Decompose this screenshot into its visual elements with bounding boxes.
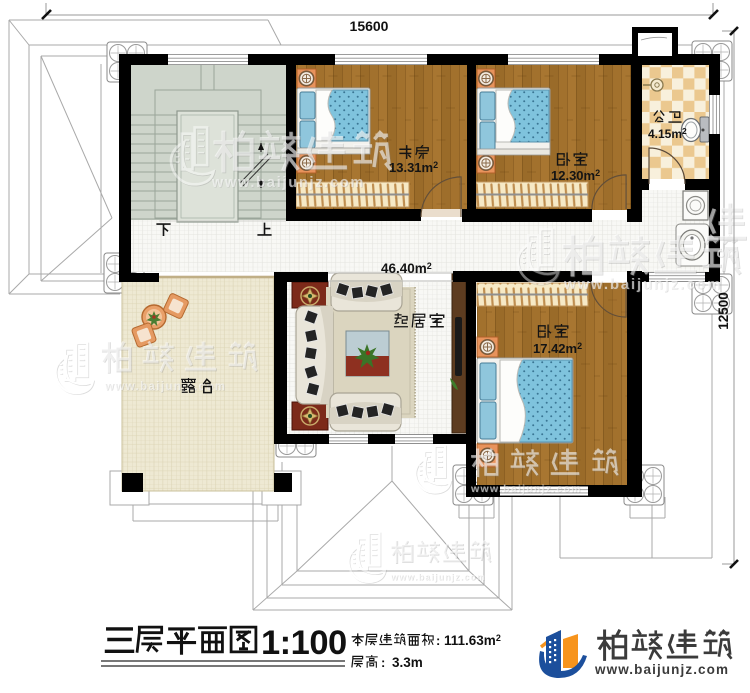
svg-text:om: om [716, 244, 740, 260]
svg-text:www.baijunjz.com: www.baijunjz.com [563, 276, 722, 293]
svg-text:15600: 15600 [350, 18, 389, 34]
svg-text:4.15m2: 4.15m2 [648, 126, 687, 141]
svg-text:www.baijunjz.com: www.baijunjz.com [594, 662, 729, 677]
svg-text:13.31m2: 13.31m2 [389, 160, 438, 175]
svg-text:www.baijunjz.com: www.baijunjz.com [390, 572, 486, 582]
svg-text:17.42m2: 17.42m2 [533, 341, 582, 356]
svg-text:1:100: 1:100 [261, 624, 347, 662]
svg-text:3.3m: 3.3m [392, 655, 423, 670]
svg-text::: : [436, 633, 440, 648]
svg-text::: : [381, 655, 385, 670]
svg-text:111.63m2: 111.63m2 [444, 633, 501, 648]
svg-text:12500: 12500 [716, 292, 731, 330]
svg-text:www.baijunjz.com: www.baijunjz.com [470, 483, 582, 495]
svg-text:www.baijunjz.com: www.baijunjz.com [211, 175, 365, 191]
svg-text:46.40m2: 46.40m2 [381, 261, 432, 276]
svg-text:12.30m2: 12.30m2 [551, 168, 600, 183]
